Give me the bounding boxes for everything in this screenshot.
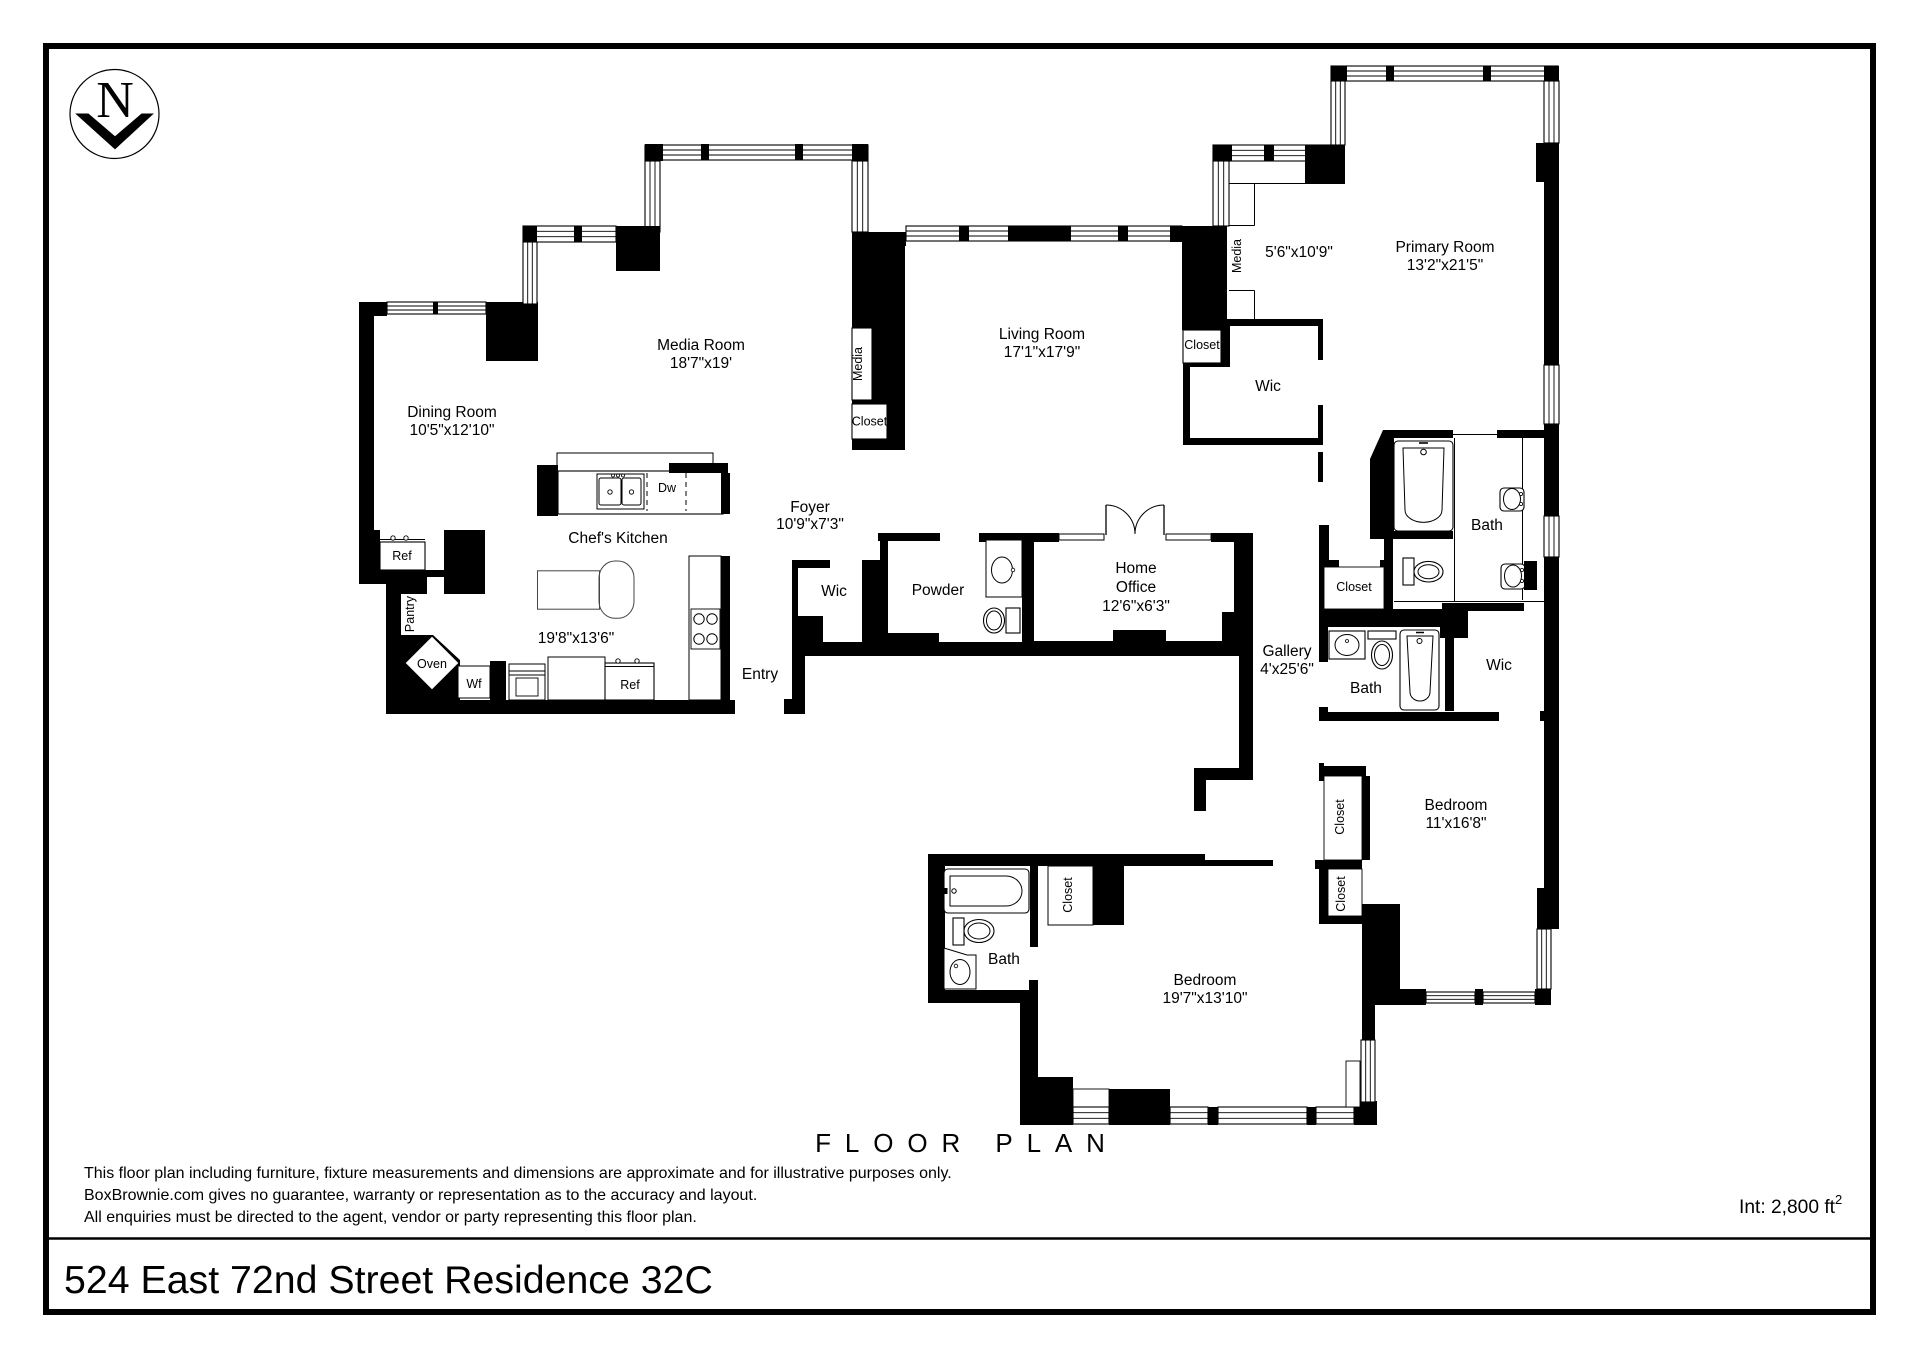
svg-text:Wic: Wic xyxy=(1255,378,1281,395)
svg-text:Gallery: Gallery xyxy=(1262,643,1311,660)
svg-text:Pantry: Pantry xyxy=(403,595,417,632)
svg-text:All enquiries must be directed: All enquiries must be directed to the ag… xyxy=(84,1209,697,1226)
svg-text:11'x16'8": 11'x16'8" xyxy=(1425,815,1486,832)
svg-text:2: 2 xyxy=(1835,1192,1842,1207)
svg-text:Dining Room: Dining Room xyxy=(407,404,497,421)
svg-text:Closet: Closet xyxy=(1184,338,1220,352)
svg-text:Entry: Entry xyxy=(742,666,778,683)
svg-text:19'7"x13'10": 19'7"x13'10" xyxy=(1162,990,1247,1007)
svg-text:Bedroom: Bedroom xyxy=(1425,797,1488,814)
svg-text:N: N xyxy=(96,72,134,129)
svg-text:10'9"x7'3": 10'9"x7'3" xyxy=(776,516,844,533)
svg-text:Closet: Closet xyxy=(1333,799,1347,835)
svg-text:Media: Media xyxy=(1230,239,1244,273)
svg-text:Closet: Closet xyxy=(852,415,888,429)
svg-text:12'6"x6'3": 12'6"x6'3" xyxy=(1102,598,1170,615)
svg-text:524 East 72nd Street Residence: 524 East 72nd Street Residence 32C xyxy=(64,1258,713,1302)
svg-text:Int: 2,800 ft: Int: 2,800 ft xyxy=(1739,1197,1836,1218)
svg-text:Chef's Kitchen: Chef's Kitchen xyxy=(568,530,667,547)
svg-text:Bath: Bath xyxy=(988,951,1020,968)
svg-text:Closet: Closet xyxy=(1336,580,1372,594)
svg-text:Bath: Bath xyxy=(1350,680,1382,697)
svg-text:FLOOR PLAN: FLOOR PLAN xyxy=(815,1128,1119,1158)
svg-text:This floor plan including furn: This floor plan including furniture, fix… xyxy=(84,1165,952,1182)
svg-text:17'1"x17'9": 17'1"x17'9" xyxy=(1004,344,1080,361)
svg-text:Media: Media xyxy=(851,347,865,381)
svg-text:Foyer: Foyer xyxy=(790,499,830,516)
svg-text:19'8"x13'6": 19'8"x13'6" xyxy=(538,630,614,647)
svg-text:Primary Room: Primary Room xyxy=(1395,239,1494,256)
svg-text:18'7"x19': 18'7"x19' xyxy=(670,355,732,372)
svg-text:Wic: Wic xyxy=(1486,657,1512,674)
svg-text:Bedroom: Bedroom xyxy=(1174,972,1237,989)
svg-text:Wic: Wic xyxy=(821,583,847,600)
svg-text:Bath: Bath xyxy=(1471,517,1503,534)
svg-text:Office: Office xyxy=(1116,579,1156,596)
svg-text:Oven: Oven xyxy=(417,657,447,671)
svg-text:Dw: Dw xyxy=(658,481,677,495)
svg-text:Closet: Closet xyxy=(1061,877,1075,913)
svg-text:Ref: Ref xyxy=(392,549,412,563)
svg-text:Ref: Ref xyxy=(620,678,640,692)
svg-text:Media Room: Media Room xyxy=(657,337,745,354)
svg-text:5'6"x10'9": 5'6"x10'9" xyxy=(1265,244,1333,261)
svg-text:4'x25'6": 4'x25'6" xyxy=(1260,661,1314,678)
svg-text:BoxBrownie.com gives no guaran: BoxBrownie.com gives no guarantee, warra… xyxy=(84,1187,757,1204)
svg-text:13'2"x21'5": 13'2"x21'5" xyxy=(1407,257,1483,274)
svg-text:Living Room: Living Room xyxy=(999,326,1085,343)
svg-text:Closet: Closet xyxy=(1334,876,1348,912)
svg-text:Powder: Powder xyxy=(912,582,965,599)
svg-text:Wf: Wf xyxy=(466,677,482,691)
svg-text:Home: Home xyxy=(1115,560,1156,577)
svg-text:10'5"x12'10": 10'5"x12'10" xyxy=(409,422,494,439)
